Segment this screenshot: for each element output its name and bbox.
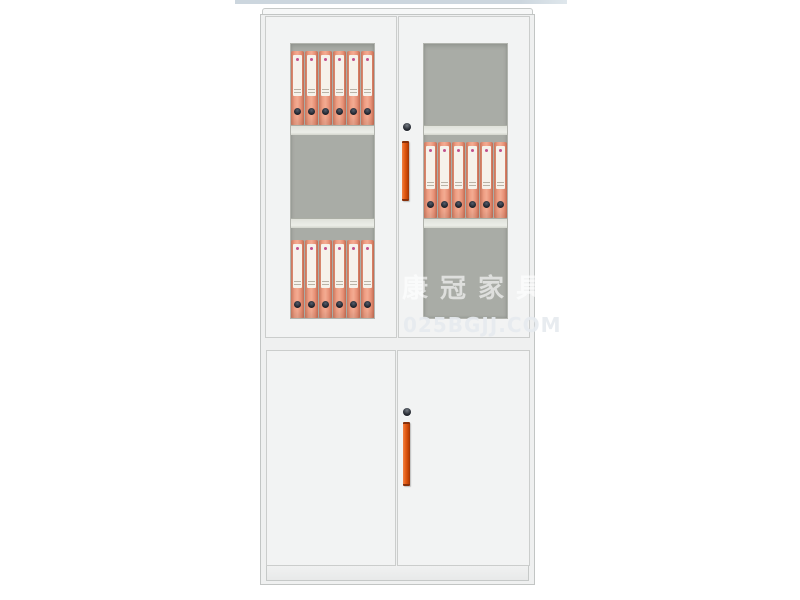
binder-label-line (336, 281, 342, 282)
product-photo: 康冠家具 025BGJJ.COM (0, 0, 800, 600)
upper-door-handle (402, 141, 409, 201)
binder-spine-label (321, 55, 330, 96)
binder-label-line (350, 92, 356, 93)
glass-window (423, 43, 508, 319)
binder-label-dot (429, 149, 432, 152)
binder (347, 240, 360, 318)
binder-grip-hole (364, 108, 371, 115)
lower-right-solid-door (397, 350, 530, 566)
binder-label-dot (324, 58, 327, 61)
binder-label-dot (499, 149, 502, 152)
binder-label-line (294, 284, 300, 285)
binder-grip-hole (469, 201, 476, 208)
binder (466, 142, 479, 218)
binder-label-line (294, 89, 300, 90)
binder-spine-label (307, 55, 316, 96)
binder-row-bottom (291, 240, 375, 318)
binder-label-line (322, 89, 328, 90)
binder (480, 142, 493, 218)
binder-label-dot (457, 149, 460, 152)
binder-grip-hole (322, 108, 329, 115)
binder-label-dot (338, 247, 341, 250)
binder-spine-label (482, 146, 491, 189)
binder (291, 240, 304, 318)
binder-label-line (308, 92, 314, 93)
binder (319, 240, 332, 318)
binder-spine-label (293, 244, 302, 288)
binder-grip-hole (336, 301, 343, 308)
binder-label-dot (310, 58, 313, 61)
binder (305, 240, 318, 318)
binder-label-line (427, 182, 433, 183)
binder-spine-label (349, 244, 358, 288)
binder-spine-label (454, 146, 463, 189)
binder-grip-hole (308, 301, 315, 308)
binder-label-dot (352, 58, 355, 61)
binder-spine-label (363, 55, 372, 96)
shelf (424, 125, 507, 135)
shelf (424, 218, 507, 228)
cabinet-body (260, 14, 535, 585)
binder-label-dot (296, 247, 299, 250)
binder-grip-hole (350, 301, 357, 308)
binder-label-line (483, 185, 489, 186)
binder-label-dot (485, 149, 488, 152)
lower-lock-icon (403, 408, 411, 416)
binder-grip-hole (294, 108, 301, 115)
binder-label-dot (324, 247, 327, 250)
binder-row-middle (424, 142, 508, 218)
binder-label-line (364, 89, 370, 90)
page-top-strip (235, 0, 567, 4)
binder-row-top (291, 51, 375, 125)
binder (438, 142, 451, 218)
binder-label-line (469, 182, 475, 183)
binder-spine-label (468, 146, 477, 189)
binder-label-line (336, 89, 342, 90)
binder-spine-label (496, 146, 505, 189)
binder-label-line (308, 281, 314, 282)
binder-spine-label (293, 55, 302, 96)
binder-label-line (364, 284, 370, 285)
binder-label-line (322, 284, 328, 285)
binder-spine-label (363, 244, 372, 288)
binder-label-line (364, 92, 370, 93)
binder-label-line (350, 281, 356, 282)
upper-left-glass-door (265, 16, 397, 338)
binder (319, 51, 332, 125)
binder-label-line (336, 92, 342, 93)
binder-label-line (308, 89, 314, 90)
binder-label-dot (471, 149, 474, 152)
binder-label-line (350, 284, 356, 285)
binder-grip-hole (441, 201, 448, 208)
binder-spine-label (426, 146, 435, 189)
binder (361, 240, 374, 318)
binder (494, 142, 507, 218)
binder-spine-label (335, 244, 344, 288)
binder (361, 51, 374, 125)
binder-label-line (294, 92, 300, 93)
binder-grip-hole (322, 301, 329, 308)
binder-label-line (308, 284, 314, 285)
binder-spine-label (440, 146, 449, 189)
binder (333, 51, 346, 125)
binder-label-dot (366, 58, 369, 61)
binder-grip-hole (455, 201, 462, 208)
binder-label-dot (443, 149, 446, 152)
binder-label-dot (310, 247, 313, 250)
binder-label-line (350, 89, 356, 90)
lower-door-handle (403, 422, 410, 486)
binder-grip-hole (427, 201, 434, 208)
upper-lock-icon (403, 123, 411, 131)
binder-spine-label (349, 55, 358, 96)
binder-label-line (455, 182, 461, 183)
binder-grip-hole (308, 108, 315, 115)
binder-label-line (322, 92, 328, 93)
binder-label-dot (366, 247, 369, 250)
binder-grip-hole (294, 301, 301, 308)
lower-left-solid-door (266, 350, 396, 566)
binder-label-line (427, 185, 433, 186)
binder-label-line (336, 284, 342, 285)
binder-label-line (364, 281, 370, 282)
binder-grip-hole (497, 201, 504, 208)
binder (333, 240, 346, 318)
upper-right-glass-door (398, 16, 530, 338)
binder (424, 142, 437, 218)
binder-label-line (497, 185, 503, 186)
binder-spine-label (321, 244, 330, 288)
shelf (291, 218, 374, 228)
binder-label-dot (352, 247, 355, 250)
binder-grip-hole (350, 108, 357, 115)
binder-spine-label (307, 244, 316, 288)
binder-label-line (322, 281, 328, 282)
binder-label-line (441, 182, 447, 183)
binder-label-dot (296, 58, 299, 61)
binder-label-line (497, 182, 503, 183)
binder (347, 51, 360, 125)
binder (305, 51, 318, 125)
binder-label-dot (338, 58, 341, 61)
shelf (291, 125, 374, 135)
binder-label-line (469, 185, 475, 186)
binder-grip-hole (364, 301, 371, 308)
binder-label-line (483, 182, 489, 183)
binder-label-line (455, 185, 461, 186)
binder (291, 51, 304, 125)
binder-grip-hole (483, 201, 490, 208)
cabinet-plinth (266, 566, 529, 581)
binder-grip-hole (336, 108, 343, 115)
filing-cabinet (260, 8, 535, 585)
binder-label-line (441, 185, 447, 186)
glass-window (290, 43, 375, 319)
binder (452, 142, 465, 218)
binder-label-line (294, 281, 300, 282)
binder-spine-label (335, 55, 344, 96)
